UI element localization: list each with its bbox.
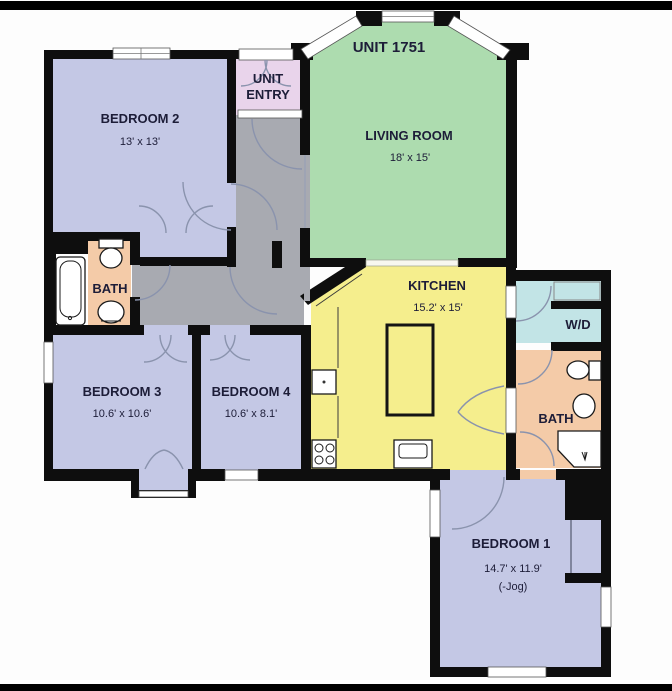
bedroom-1-label: BEDROOM 1 [472, 536, 551, 551]
bedroom-3-label: BEDROOM 3 [83, 384, 162, 399]
sink-right [573, 394, 595, 418]
floor-plan: UNIT 1751 BEDROOM 2 13' x 13' UNIT ENTRY… [0, 0, 672, 691]
bedroom-4-label: BEDROOM 4 [212, 384, 292, 399]
bedroom-2-closet-floor [136, 232, 228, 259]
bedroom-4-floor [200, 334, 302, 472]
unit-entry-label-2: ENTRY [246, 87, 290, 102]
toilet-left-tank [99, 239, 123, 248]
bedroom-1-dims: 14.7' x 11.9' [484, 563, 542, 575]
bedroom-2-label: BEDROOM 2 [101, 111, 180, 126]
hallway-floor-main [236, 115, 304, 327]
bath-right-label: BATH [538, 411, 573, 426]
unit-title: UNIT 1751 [353, 39, 426, 56]
unit-entry-label-1: UNIT [253, 71, 283, 86]
living-room-dims: 18' x 15' [390, 152, 430, 164]
bedroom-3-floor [52, 334, 193, 472]
bath-left-label: BATH [92, 281, 127, 296]
toilet-left [100, 248, 122, 268]
laundry-divider-wall [551, 301, 601, 309]
toilet-right [567, 361, 589, 379]
living-room-label: LIVING ROOM [365, 128, 452, 143]
bedroom-4-dims: 10.6' x 8.1' [225, 408, 278, 420]
letterbox-bottom [0, 684, 672, 691]
bedroom-3-dims: 10.6' x 10.6' [93, 408, 152, 420]
bedroom-2-dims: 13' x 13' [120, 136, 160, 148]
kitchen-label: KITCHEN [408, 278, 466, 293]
kitchen-dims: 15.2' x 15' [413, 302, 462, 314]
kitchen-island [387, 325, 433, 415]
laundry-label: W/D [565, 317, 590, 332]
toilet-right-tank [589, 361, 601, 380]
laundry-floor [516, 281, 602, 343]
sink-left [98, 301, 124, 323]
floor-plan-page: UNIT 1751 BEDROOM 2 13' x 13' UNIT ENTRY… [0, 0, 672, 691]
bedroom-1-note: (-Jog) [499, 581, 528, 593]
letterbox-top [0, 1, 672, 10]
